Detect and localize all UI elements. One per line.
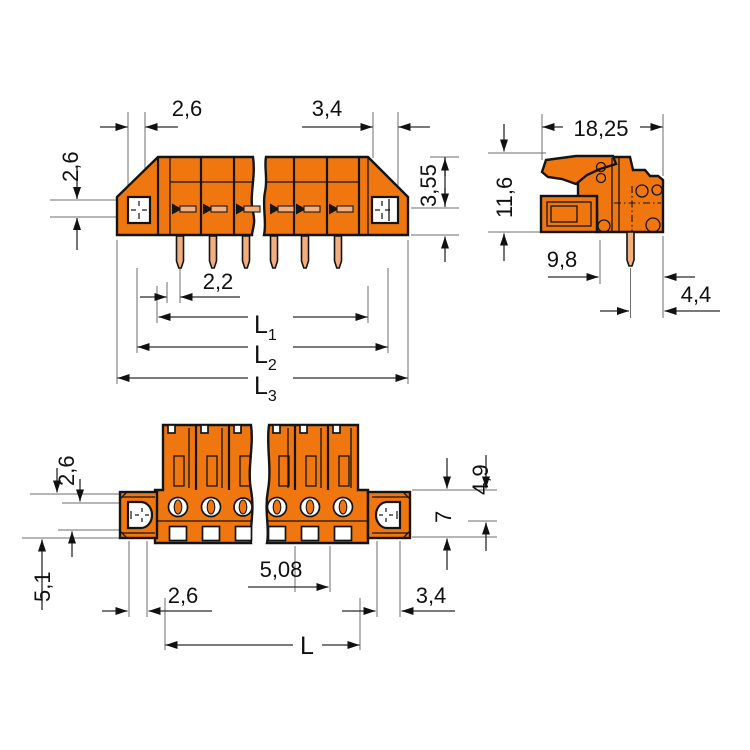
dim-side-pin-to-edge: 4,4 <box>681 282 712 307</box>
mounting-flange-left <box>120 492 157 538</box>
bottom-housing-left <box>155 425 252 543</box>
technical-drawing-page: 2,6 3,4 2,6 3,55 2,2 L1 L2 L3 <box>0 0 750 750</box>
connector-dimensional-drawing: 2,6 3,4 2,6 3,55 2,2 L1 L2 L3 <box>0 0 750 750</box>
dim-front-pin-offset: 2,2 <box>203 269 234 294</box>
dim-bottom-pitch: 5,08 <box>260 557 303 582</box>
solder-pin <box>177 236 184 268</box>
background <box>0 0 750 750</box>
dim-bottom-upper-height: 2,6 <box>54 455 79 486</box>
dim-side-flange-depth: 9,8 <box>547 247 578 272</box>
dim-bottom-hole-left: 2,6 <box>168 583 199 608</box>
solder-pin <box>302 236 309 268</box>
solder-pin <box>271 236 278 268</box>
dim-bottom-upper-half: 4,9 <box>468 464 493 495</box>
dim-bottom-hole-right: 3,4 <box>416 583 447 608</box>
front-mounting-hole-left <box>128 197 150 223</box>
dim-side-height: 11,6 <box>492 177 517 218</box>
front-mounting-hole-right <box>372 197 398 223</box>
mounting-flange-right <box>368 492 410 538</box>
dim-bottom-lower-drop: 5,1 <box>30 571 55 602</box>
dim-front-flange-left: 2,6 <box>172 96 203 121</box>
dim-front-flange-right: 3,4 <box>312 96 343 121</box>
solder-pin <box>210 236 217 268</box>
solder-pin <box>243 236 250 268</box>
side-solder-pin <box>627 232 634 266</box>
dim-front-upper-height: 2,6 <box>58 151 83 182</box>
dim-side-depth: 18,25 <box>573 116 628 141</box>
dim-front-right-height: 3,55 <box>416 164 441 207</box>
solder-pin <box>335 236 342 268</box>
dim-bottom-flange-height: 7 <box>431 511 456 523</box>
bottom-housing-right <box>267 425 368 543</box>
dim-bottom-length: L <box>300 632 314 660</box>
